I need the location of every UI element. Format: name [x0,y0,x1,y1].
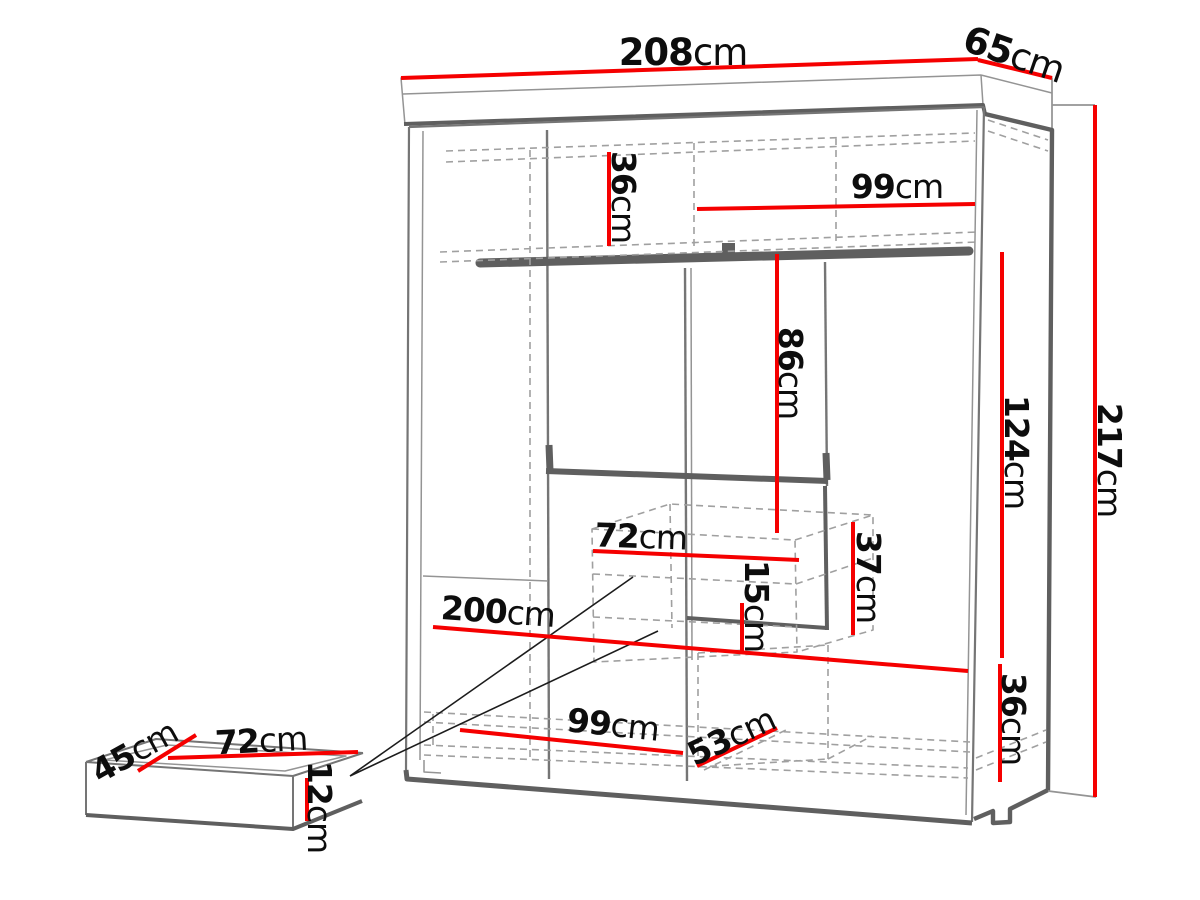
rail-bracket [722,243,735,256]
dim-label-hanging-height: 86cm [772,327,811,419]
dim-label-interior-width: 200cm [440,588,557,635]
dim-label-pullout-height: 12cm [301,761,340,853]
wardrobe-dimension-diagram: 208cm 65cm 36cm 99cm 86cm 124cm 217cm 72… [0,0,1200,900]
dim-label-height: 217cm [1091,403,1130,517]
divider-middle-inner [691,268,692,660]
dim-label-drawer-front-height: 15cm [738,560,777,652]
dim-label-width: 208cm [619,31,748,74]
dim-label-pullout-width: 72cm [214,718,308,762]
dim-label-drawer-width: 72cm [594,515,688,557]
drawer-niche-wall [825,486,827,630]
dim-label-bottom-height: 36cm [995,673,1034,765]
diagram-stage: 208cm 65cm 36cm 99cm 86cm 124cm 217cm 72… [0,0,1200,900]
dim-label-right-section-height: 124cm [998,395,1037,509]
dim-label-drawer-unit-height: 37cm [850,531,889,623]
dim-label-top-shelf-width: 99cm [851,167,943,206]
dim-label-top-shelf-height: 36cm [605,151,644,243]
